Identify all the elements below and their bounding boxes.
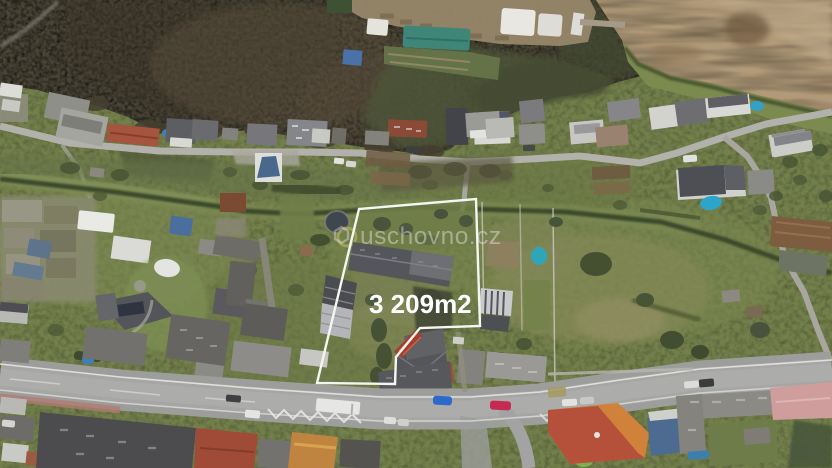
- svg-text:3 209m2: 3 209m2: [369, 289, 472, 319]
- svg-text:uschovno.cz: uschovno.cz: [360, 223, 502, 250]
